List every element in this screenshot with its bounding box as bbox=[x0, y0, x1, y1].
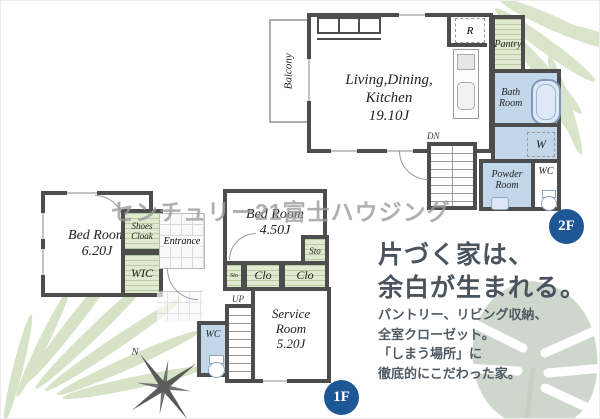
washer-label: W bbox=[536, 138, 546, 152]
window bbox=[67, 191, 97, 195]
stairs-dn-label: DN bbox=[427, 131, 440, 141]
window bbox=[399, 13, 425, 17]
service-room-label: Service Room 5.20J bbox=[272, 307, 310, 352]
wic-label: WIC bbox=[131, 267, 153, 281]
wc-2f-label: WC bbox=[539, 166, 554, 178]
washer-space: W bbox=[527, 132, 555, 157]
tagline-body-line3: 「しまう場所」に bbox=[378, 344, 586, 364]
ldk-label: Living,Dining, Kitchen 19.10J bbox=[317, 71, 461, 125]
stove-icon bbox=[457, 54, 475, 70]
pantry-label: Pantry bbox=[494, 39, 521, 51]
bedroom-620-label: Bed Room 6.20J bbox=[68, 228, 126, 260]
service-room: Service Room 5.20J bbox=[251, 287, 331, 383]
wc-1f-label: WC bbox=[206, 329, 221, 341]
tagline-body-line1: パントリー、リビング収納、 bbox=[378, 305, 586, 325]
compass-n-label: N bbox=[130, 346, 139, 358]
closet-left-label: Clo bbox=[254, 269, 271, 283]
window bbox=[41, 249, 45, 275]
shelf-line bbox=[317, 38, 381, 40]
tagline-heading-line1: 片づく家は、 bbox=[378, 239, 586, 272]
stairs-1f bbox=[225, 304, 255, 383]
bath-label: Bath Room bbox=[495, 87, 522, 110]
door-arc bbox=[399, 151, 428, 180]
floorplan-flyer: センチュリー21富士ハウジング Balcony Living,Dining, K… bbox=[0, 0, 600, 419]
bath-room: Bath Room bbox=[491, 69, 561, 127]
storage-small: Sto bbox=[223, 261, 245, 291]
tagline-body-line4: 徹底的にこだわった家。 bbox=[378, 364, 586, 384]
fridge-label: R bbox=[467, 25, 474, 37]
living-storage bbox=[317, 17, 381, 34]
storage-small-label: Sto bbox=[230, 272, 238, 279]
wall bbox=[447, 43, 487, 47]
bathtub-icon bbox=[531, 79, 561, 125]
storage-right-label: Sto bbox=[309, 246, 321, 256]
window bbox=[263, 379, 287, 383]
refrigerator-space: R bbox=[455, 18, 485, 43]
entrance-label: Entrance bbox=[163, 236, 202, 247]
compass-icon: N bbox=[121, 341, 207, 419]
floor-badge-1f: 1F bbox=[324, 380, 359, 415]
wall bbox=[447, 13, 451, 47]
window bbox=[307, 59, 311, 101]
pantry: Pantry bbox=[491, 15, 525, 75]
laundry-room: W bbox=[491, 123, 561, 163]
watermark: センチュリー21富士ハウジング bbox=[111, 193, 451, 227]
balcony: Balcony bbox=[269, 19, 309, 123]
balcony-label: Balcony bbox=[283, 53, 296, 89]
toilet-icon bbox=[208, 362, 225, 378]
stairs-up-label: UP bbox=[232, 294, 244, 304]
tagline-block: 片づく家は、 余白が生まれる。 パントリー、リビング収納、 全室クローゼット。 … bbox=[378, 239, 586, 383]
tagline-body-line2: 全室クローゼット。 bbox=[378, 325, 586, 345]
closet-right-label: Clo bbox=[296, 269, 313, 283]
window bbox=[41, 213, 45, 239]
window bbox=[331, 149, 357, 153]
tagline-heading-line2: 余白が生まれる。 bbox=[378, 272, 586, 305]
